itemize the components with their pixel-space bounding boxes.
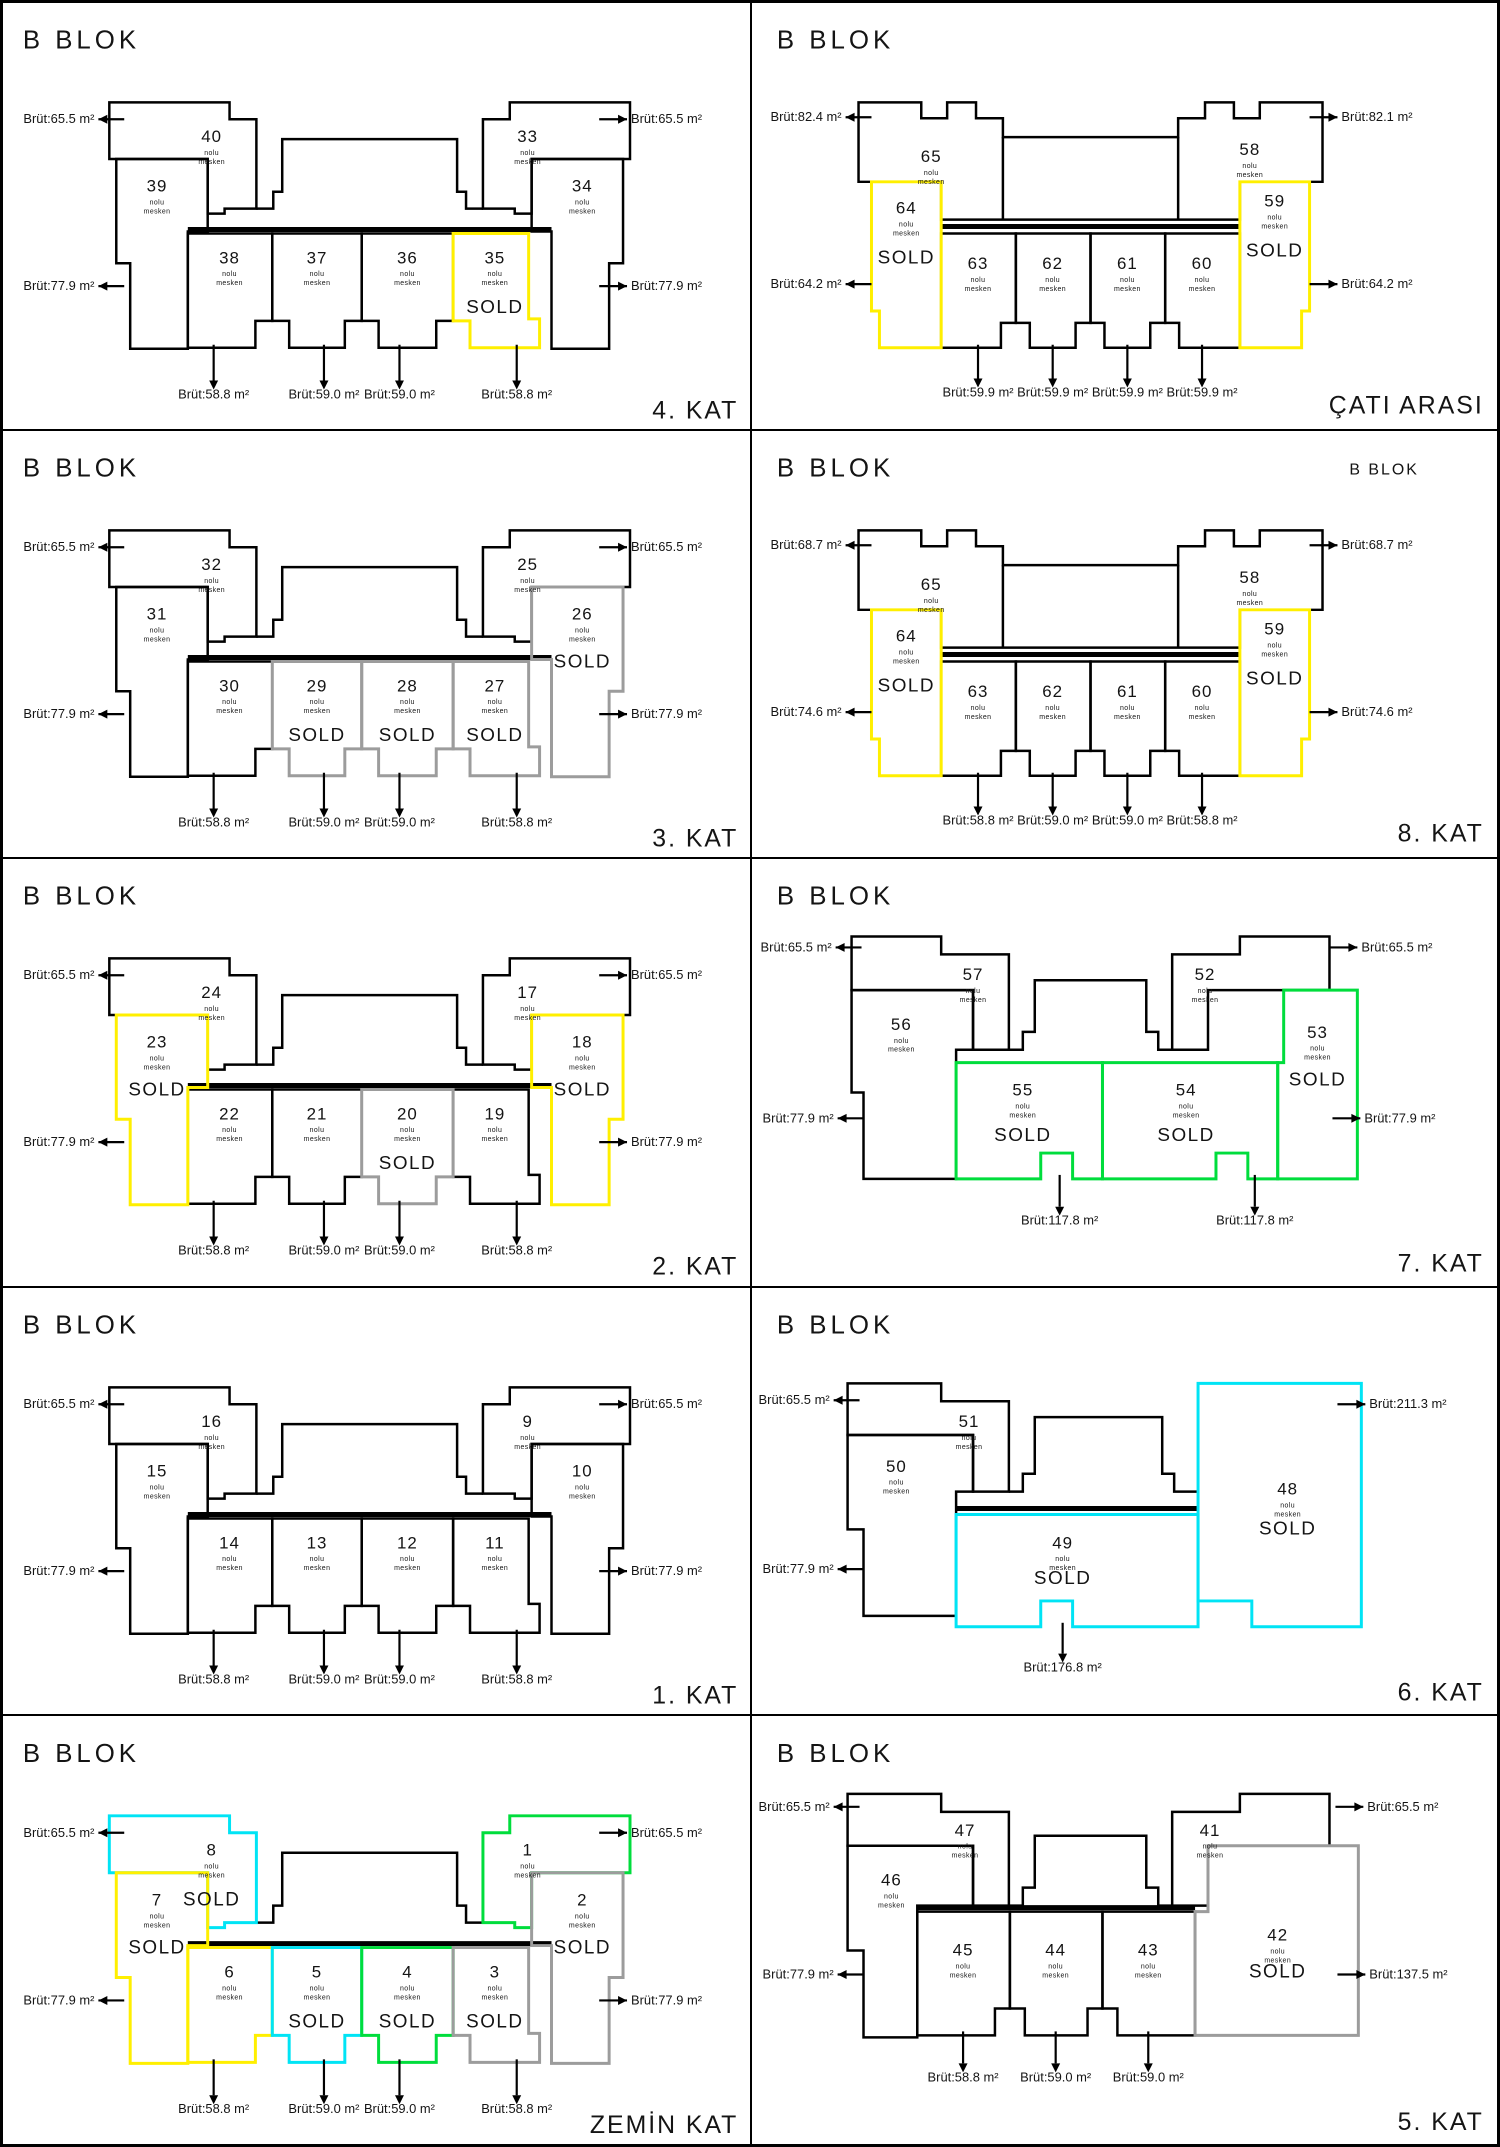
block-title-secondary: B BLOK [1350,462,1419,479]
unit-sub-line2: mesken [394,708,421,715]
unit-sub-line1: nolu [575,628,590,635]
unit-sub-line1: nolu [924,598,939,605]
area-label-mid-right: Brüt:64.2 m² [1342,276,1414,291]
floor-title: 2. KAT [652,1254,738,1281]
unit-sub-line2: mesken [514,1872,541,1879]
block-title: B BLOK [777,883,894,911]
panel-kat-8: B BLOKB BLOK8. KAT65nolumesken64nolumesk… [752,431,1497,859]
unit-sub-line1: nolu [488,1556,503,1563]
sold-badge: SOLD [554,651,611,672]
unit-sub-line2: mesken [144,1493,171,1500]
direction-arrow-icon [395,1201,404,1246]
sold-badge: SOLD [1034,1568,1091,1589]
unit-sub-line2: mesken [918,607,945,614]
sold-badge: SOLD [128,1937,185,1958]
arrow-head-icon [838,1564,847,1573]
area-label-bottom-1: Brüt:59.0 m² [1020,2069,1092,2084]
area-label-bottom-2: Brüt:59.0 m² [364,386,436,401]
unit-sub-line1: nolu [400,271,415,278]
area-label-bottom-0: Brüt:117.8 m² [1021,1213,1099,1228]
unit-sub-line1: nolu [310,1556,325,1563]
unit-sub-line2: mesken [304,1137,331,1144]
area-label-mid-right: Brüt:77.9 m² [631,1563,703,1578]
direction-arrow-icon [846,280,872,289]
building-outline [1003,565,1178,647]
unit-sub-line2: mesken [482,708,509,715]
arrow-head-icon [1329,113,1338,122]
sold-badge: SOLD [466,296,523,317]
unit-sub-line2: mesken [216,1994,243,2001]
direction-arrow-icon [838,1564,864,1573]
unit-number-21: 21 [307,1105,328,1124]
area-label-bottom-2: Brüt:59.0 m² [1113,2069,1185,2084]
arrow-head-icon [618,1828,627,1837]
unit-sub-line1: nolu [520,1863,535,1870]
unit-number-31: 31 [147,605,168,624]
unit-number-2: 2 [577,1890,587,1909]
arrow-head-icon [846,541,855,550]
area-label-mid-left: Brüt:77.9 m² [763,1966,835,1981]
unit-sub-line2: mesken [394,1994,421,2001]
unit-number-28: 28 [397,676,418,695]
unit-sub-line1: nolu [958,1843,973,1850]
area-label-bottom-1: Brüt:59.9 m² [1017,384,1089,399]
unit-number-62: 62 [1043,254,1064,273]
arrow-head-icon [846,113,855,122]
unit-number-55: 55 [1013,1081,1034,1100]
area-label-bottom-0: Brüt:58.8 m² [943,813,1015,828]
unit-outline-50 [848,1435,973,1616]
direction-arrow-icon [1198,345,1207,388]
unit-number-30: 30 [219,676,240,695]
unit-sub-line2: mesken [216,280,243,287]
unit-sub-line2: mesken [1135,1972,1162,1979]
direction-arrow-icon [1198,773,1207,816]
area-label-bottom-1: Brüt:59.0 m² [288,386,360,401]
block-title: B BLOK [23,1311,140,1339]
arrow-head-icon [834,1395,843,1404]
unit-number-20: 20 [397,1105,418,1124]
area-label-bottom-0: Brüt:58.8 m² [178,1243,250,1258]
unit-sub-line1: nolu [889,1479,904,1486]
unit-sub-line2: mesken [144,209,171,216]
unit-sub-line2: mesken [893,659,920,666]
direction-arrow-icon [836,943,862,952]
unit-number-59: 59 [1265,620,1286,639]
arrow-head-icon [618,282,627,291]
unit-number-42: 42 [1268,1925,1289,1944]
unit-sub-line2: mesken [394,1137,421,1144]
unit-number-56: 56 [891,1015,912,1034]
unit-number-16: 16 [201,1412,222,1431]
building-outline [256,567,483,637]
unit-number-52: 52 [1195,966,1216,985]
sold-badge: SOLD [1259,1518,1316,1539]
unit-sub-line2: mesken [304,708,331,715]
unit-sub-line2: mesken [144,637,171,644]
unit-number-6: 6 [224,1962,234,1981]
area-label-top-right: Brüt:65.5 m² [631,111,703,126]
block-title: B BLOK [23,1740,140,1768]
arrow-head-icon [98,1566,107,1575]
unit-sub-line2: mesken [569,1065,596,1072]
panel-kat-2: B BLOK2. KAT24nolumesken23nolumeskenSOLD… [3,859,752,1287]
area-label-top-left: Brüt:65.5 m² [759,1799,831,1814]
panel-cati-arasi: B BLOKÇATI ARASI65nolumesken64nolumesken… [752,3,1497,431]
arrow-head-icon [846,280,855,289]
unit-sub-line2: mesken [1040,286,1067,293]
block-title: B BLOK [777,1311,894,1339]
arrow-head-icon [838,1970,847,1979]
unit-sub-line1: nolu [400,699,415,706]
unit-sub-line1: nolu [1046,705,1061,712]
unit-sub-line1: nolu [520,578,535,585]
unit-sub-line2: mesken [1237,600,1264,607]
direction-arrow-icon [319,1201,328,1246]
floor-plan-svg-kat-3: B BLOK3. KAT32nolumesken31nolumesken30no… [3,431,750,857]
unit-number-22: 22 [219,1105,240,1124]
sold-badge: SOLD [379,2011,436,2032]
area-label-mid-left: Brüt:77.9 m² [23,706,95,721]
area-label-bottom-3: Brüt:58.8 m² [481,815,553,830]
arrow-head-icon [618,543,627,552]
arrow-head-icon [1355,1802,1364,1811]
unit-sub-line1: nolu [1268,215,1283,222]
arrow-head-icon [98,1399,107,1408]
unit-number-4: 4 [402,1962,412,1981]
direction-arrow-icon [1336,1802,1364,1811]
unit-sub-line1: nolu [204,150,219,157]
direction-arrow-icon [1330,943,1358,952]
area-label-top-right: Brüt:65.5 m² [631,1396,703,1411]
unit-sub-line1: nolu [884,1893,899,1900]
unit-sub-line2: mesken [960,997,987,1004]
unit-sub-line1: nolu [1049,1963,1064,1970]
unit-sub-line2: mesken [514,1015,541,1022]
area-label-top-left: Brüt:65.5 m² [23,539,95,554]
unit-sub-line1: nolu [971,705,986,712]
unit-outline-41 [1172,1794,1329,1906]
unit-sub-line2: mesken [569,637,596,644]
unit-number-60: 60 [1192,682,1213,701]
unit-sub-line1: nolu [1141,1963,1156,1970]
unit-sub-line1: nolu [1195,277,1210,284]
unit-sub-line1: nolu [150,200,165,207]
unit-sub-line2: mesken [1010,1113,1037,1120]
direction-arrow-icon [209,1201,218,1246]
unit-number-10: 10 [572,1461,593,1480]
panel-kat-3: B BLOK3. KAT32nolumesken31nolumesken30no… [3,431,752,859]
arrow-head-icon [618,710,627,719]
unit-number-35: 35 [484,248,505,267]
area-label-bottom-2: Brüt:59.0 m² [364,815,436,830]
floor-title: 7. KAT [1398,1250,1484,1278]
unit-number-61: 61 [1117,254,1138,273]
unit-number-63: 63 [968,682,989,701]
unit-number-24: 24 [201,983,222,1002]
direction-arrow-icon [974,345,983,388]
unit-number-64: 64 [896,199,917,218]
block-title: B BLOK [777,1740,894,1768]
arrow-head-icon [1329,708,1338,717]
arrow-head-icon [838,1114,847,1123]
unit-sub-line1: nolu [520,1435,535,1442]
unit-sub-line2: mesken [965,714,992,721]
unit-sub-line2: mesken [304,1994,331,2001]
area-label-bottom-0: Brüt:58.8 m² [178,815,250,830]
unit-sub-line1: nolu [971,277,986,284]
area-label-top-left: Brüt:65.5 m² [761,940,833,955]
area-label-bottom-1: Brüt:59.0 m² [1017,813,1089,828]
unit-number-60: 60 [1192,254,1213,273]
arrow-head-icon [98,115,107,124]
sold-badge: SOLD [466,2011,523,2032]
unit-number-11: 11 [485,1533,505,1552]
unit-sub-line1: nolu [575,1484,590,1491]
floor-plan-svg-kat-7: B BLOK7. KAT57nolumesken56nolumesken55no… [752,859,1497,1285]
floor-plan-svg-cati-arasi: B BLOKÇATI ARASI65nolumesken64nolumesken… [752,3,1497,429]
unit-sub-line1: nolu [520,150,535,157]
unit-sub-line1: nolu [966,988,981,995]
block-title: B BLOK [777,27,894,55]
unit-number-15: 15 [147,1461,168,1480]
area-label-bottom-3: Brüt:58.8 m² [1167,813,1239,828]
unit-sub-line1: nolu [310,699,325,706]
unit-sub-line1: nolu [488,271,503,278]
unit-number-19: 19 [484,1105,505,1124]
unit-sub-line1: nolu [310,271,325,278]
direction-arrow-icon [599,543,627,552]
direction-arrow-icon [98,971,124,980]
unit-number-26: 26 [572,605,593,624]
unit-number-47: 47 [955,1821,976,1840]
area-label-bottom-2: Brüt:59.0 m² [364,1243,436,1258]
arrow-head-icon [1349,943,1358,952]
unit-sub-line2: mesken [394,280,421,287]
direction-arrow-icon [319,2059,328,2104]
unit-sub-line2: mesken [1262,224,1289,231]
direction-arrow-icon [599,115,627,124]
sold-badge: SOLD [1246,240,1303,261]
floor-plan-svg-zemin-kat: B BLOKZEMİN KAT8nolumeskenSOLD7nolumeske… [3,1716,750,2144]
sold-badge: SOLD [1246,669,1303,690]
direction-arrow-icon [512,345,521,390]
floor-plan-svg-kat-6: B BLOK6. KAT51nolumesken50nolumesken49no… [752,1288,1497,1714]
unit-sub-line2: mesken [394,1565,421,1572]
direction-arrow-icon [512,1629,521,1674]
unit-sub-line1: nolu [150,1913,165,1920]
direction-arrow-icon [1251,1175,1260,1216]
unit-number-36: 36 [397,248,418,267]
unit-number-50: 50 [886,1456,907,1475]
direction-arrow-icon [599,710,627,719]
unit-number-53: 53 [1307,1023,1328,1042]
direction-arrow-icon [1310,708,1338,717]
direction-arrow-icon [209,1629,218,1674]
unit-number-65: 65 [921,575,942,594]
panel-kat-1: B BLOK1. KAT16nolumesken15nolumesken14no… [3,1288,752,1716]
block-title: B BLOK [23,455,140,483]
area-label-bottom-3: Brüt:58.8 m² [481,1671,553,1686]
unit-sub-line2: mesken [1040,714,1067,721]
floor-plan-svg-kat-1: B BLOK1. KAT16nolumesken15nolumesken14no… [3,1288,750,1714]
unit-number-38: 38 [219,248,240,267]
unit-sub-line1: nolu [310,1128,325,1135]
arrow-head-icon [836,943,845,952]
block-title: B BLOK [23,27,140,55]
unit-sub-line2: mesken [1262,652,1289,659]
floor-plan-svg-kat-8: B BLOKB BLOK8. KAT65nolumesken64nolumesk… [752,431,1497,857]
area-label-top-left: Brüt:65.5 m² [23,968,95,983]
area-label-top-right: Brüt:65.5 m² [631,1824,703,1839]
area-label-bottom-0: Brüt:58.8 m² [178,1671,250,1686]
unit-sub-line1: nolu [894,1038,909,1045]
unit-number-9: 9 [522,1412,532,1431]
unit-sub-line1: nolu [575,1056,590,1063]
area-label-bottom-3: Brüt:58.8 m² [481,386,553,401]
direction-arrow-icon [209,345,218,390]
unit-number-46: 46 [881,1870,902,1889]
direction-arrow-icon [98,1138,124,1147]
unit-sub-line2: mesken [1173,1113,1200,1120]
building-outline [256,1852,483,1922]
unit-sub-line2: mesken [965,286,992,293]
unit-sub-line1: nolu [222,271,237,278]
direction-arrow-icon [512,773,521,818]
direction-arrow-icon [209,773,218,818]
unit-sub-line2: mesken [950,1972,977,1979]
area-label-mid-left: Brüt:77.9 m² [23,1134,95,1149]
unit-sub-line1: nolu [1179,1104,1194,1111]
arrow-head-icon [834,1802,843,1811]
floor-title: 1. KAT [652,1682,738,1709]
floor-title: ÇATI ARASI [1329,391,1484,419]
area-label-mid-right: Brüt:74.6 m² [1342,704,1414,719]
direction-arrow-icon [1123,773,1132,816]
unit-sub-line1: nolu [487,1985,502,1992]
unit-sub-line2: mesken [1192,997,1219,1004]
unit-number-61: 61 [1117,682,1138,701]
direction-arrow-icon [599,1138,627,1147]
area-label-top-left: Brüt:82.4 m² [771,109,843,124]
building-outline [256,1424,483,1494]
unit-number-5: 5 [312,1962,322,1981]
area-label-top-left: Brüt:65.5 m² [759,1392,831,1407]
direction-arrow-icon [98,710,124,719]
unit-sub-line1: nolu [1243,163,1258,170]
building-outline [1009,1417,1198,1492]
direction-arrow-icon [838,1114,864,1123]
direction-arrow-icon [1055,1175,1064,1216]
unit-number-8: 8 [206,1840,216,1859]
direction-arrow-icon [599,1399,627,1408]
area-label-bottom-0: Brüt:58.8 m² [928,2069,1000,2084]
unit-sub-line2: mesken [481,1994,508,2001]
panel-kat-4: B BLOK4. KAT40nolumesken39nolumesken38no… [3,3,752,431]
unit-sub-line1: nolu [1046,277,1061,284]
area-label-top-left: Brüt:65.5 m² [23,1396,95,1411]
direction-arrow-icon [98,282,124,291]
direction-arrow-icon [1058,1622,1067,1662]
unit-sub-line2: mesken [304,1565,331,1572]
unit-sub-line1: nolu [150,1056,165,1063]
area-label-mid-left: Brüt:77.9 m² [763,1111,835,1126]
unit-sub-line2: mesken [144,1922,171,1929]
direction-arrow-icon [1144,2031,1153,2072]
building-outline [1009,981,1172,1051]
area-label-bottom-0: Brüt:58.8 m² [178,2101,250,2116]
unit-sub-line2: mesken [1189,286,1216,293]
direction-arrow-icon [209,2059,218,2104]
direction-arrow-icon [319,345,328,390]
unit-sub-line1: nolu [1120,705,1135,712]
sold-badge: SOLD [878,247,935,268]
unit-number-1: 1 [522,1840,532,1859]
unit-number-32: 32 [201,555,222,574]
unit-number-41: 41 [1200,1821,1221,1840]
panel-kat-7: B BLOK7. KAT57nolumesken56nolumesken55no… [752,859,1497,1287]
unit-sub-line2: mesken [482,280,509,287]
sold-badge: SOLD [994,1126,1051,1147]
sold-badge: SOLD [288,2011,345,2032]
direction-arrow-icon [599,1828,627,1837]
arrow-head-icon [98,1996,107,2005]
unit-sub-line2: mesken [1114,714,1141,721]
arrow-head-icon [98,1828,107,1837]
unit-sub-line1: nolu [962,1435,977,1442]
area-label-bottom-2: Brüt:59.9 m² [1092,384,1164,399]
area-label-top-left: Brüt:65.5 m² [23,1824,95,1839]
unit-number-7: 7 [152,1890,162,1909]
arrow-head-icon [846,708,855,717]
area-label-bottom-3: Brüt:59.9 m² [1167,384,1239,399]
unit-sub-line2: mesken [1197,1852,1224,1859]
floor-title: ZEMİN KAT [590,2110,738,2139]
unit-outline-57 [852,937,1009,1050]
direction-arrow-icon [98,1828,124,1837]
sold-badge: SOLD [466,724,523,745]
block-title: B BLOK [777,455,894,483]
unit-sub-line1: nolu [1055,1556,1070,1563]
unit-number-59: 59 [1265,192,1286,211]
direction-arrow-icon [512,2059,521,2104]
unit-sub-line1: nolu [400,1556,415,1563]
unit-number-3: 3 [490,1962,500,1981]
direction-arrow-icon [974,773,983,816]
direction-arrow-icon [319,773,328,818]
arrow-head-icon [618,1566,627,1575]
floor-plan-svg-kat-2: B BLOK2. KAT24nolumesken23nolumeskenSOLD… [3,859,750,1285]
direction-arrow-icon [395,773,404,818]
direction-arrow-icon [98,1399,124,1408]
unit-number-58: 58 [1240,568,1261,587]
sold-badge: SOLD [128,1079,185,1100]
unit-sub-line2: mesken [1189,714,1216,721]
unit-sub-line2: mesken [878,1902,905,1909]
unit-sub-line1: nolu [150,628,165,635]
unit-number-23: 23 [147,1033,168,1052]
unit-sub-line2: mesken [569,209,596,216]
unit-sub-line1: nolu [575,1913,590,1920]
direction-arrow-icon [98,1996,124,2005]
area-label-top-right: Brüt:82.1 m² [1342,109,1414,124]
unit-sub-line1: nolu [1198,988,1213,995]
unit-sub-line1: nolu [899,222,914,229]
area-label-bottom-0: Brüt:176.8 m² [1024,1659,1103,1674]
arrow-head-icon [618,1996,627,2005]
area-label-mid-left: Brüt:77.9 m² [23,1563,95,1578]
panel-zemin-kat: B BLOKZEMİN KAT8nolumeskenSOLD7nolumeske… [3,1716,752,2144]
